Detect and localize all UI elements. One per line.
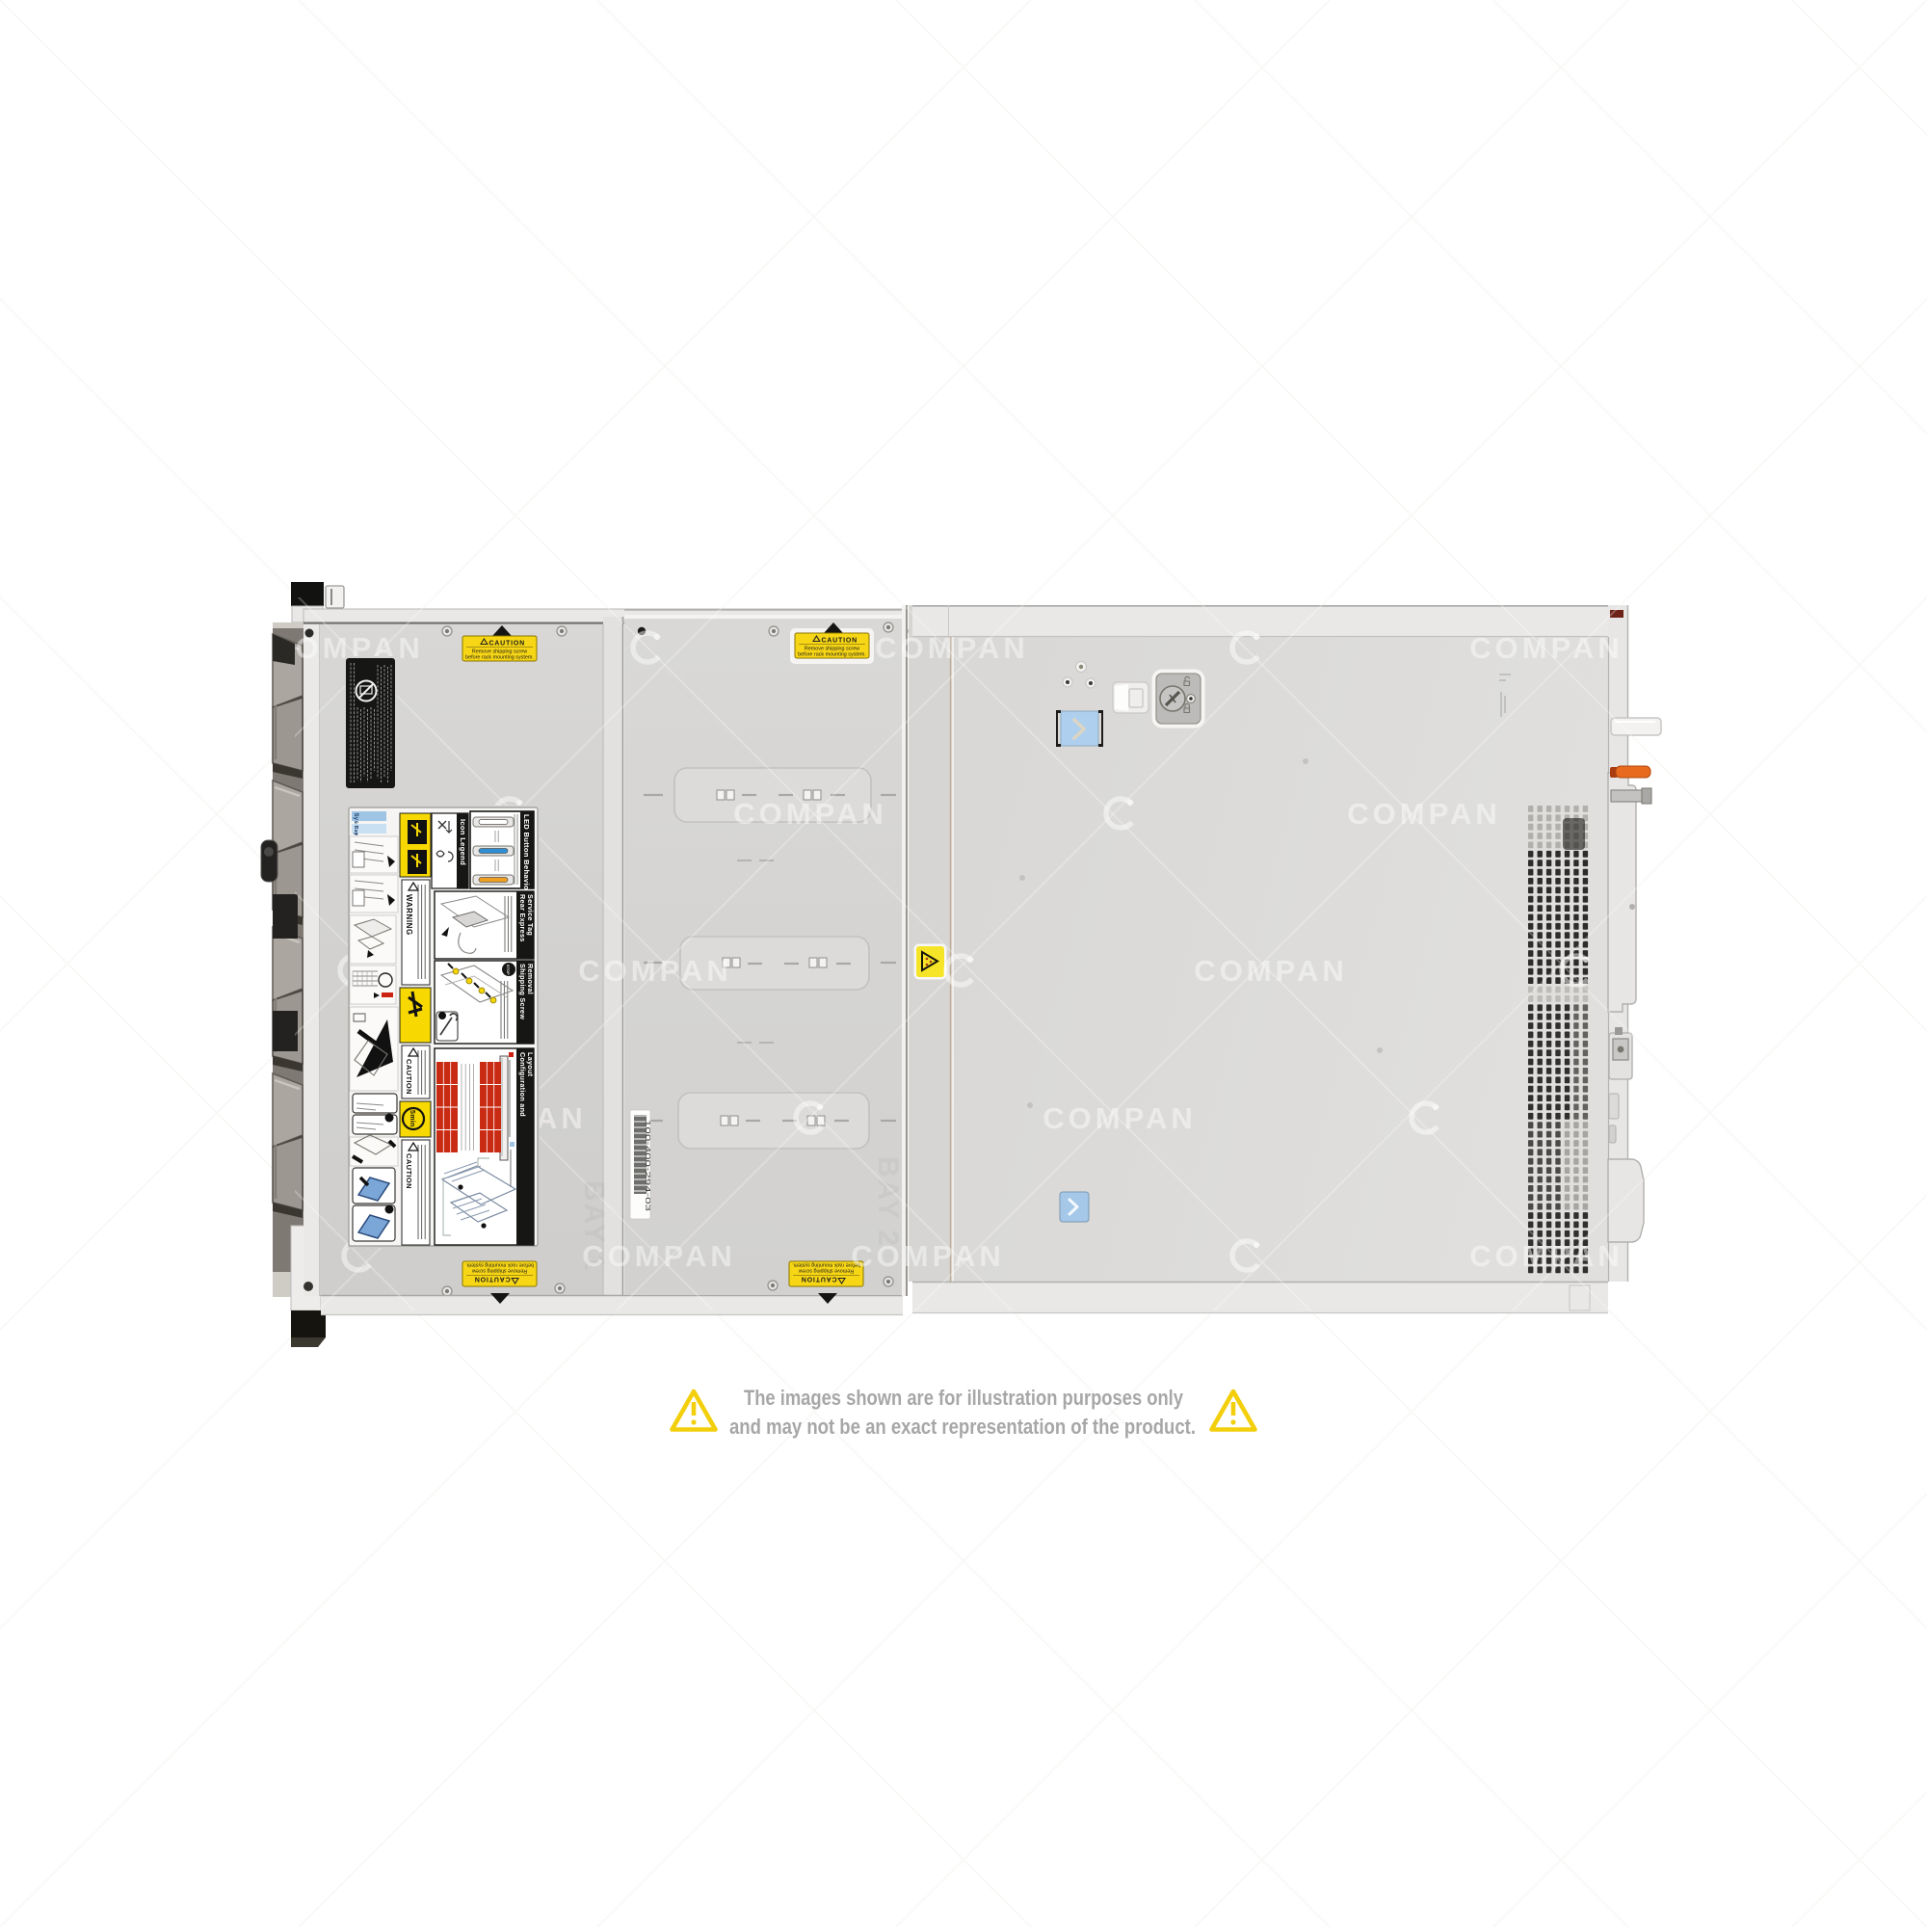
svg-text:and may not be an exact repres: and may not be an exact representation o… [729, 1415, 1196, 1439]
svg-text:Rear Express: Rear Express [518, 894, 527, 942]
svg-text:CAUTION: CAUTION [488, 641, 525, 648]
svg-text:100-400-294-03: 100-400-294-03 [644, 1120, 650, 1211]
svg-text:before rack mounting system.: before rack mounting system. [792, 1262, 860, 1268]
svg-text:WARNING: WARNING [405, 894, 413, 936]
svg-text:Icon Legend: Icon Legend [459, 819, 467, 865]
svg-text:Shipping Screw: Shipping Screw [518, 964, 527, 1019]
svg-text:before rack mounting system.: before rack mounting system. [465, 1262, 534, 1268]
svg-text:COMPAN: COMPAN [851, 1239, 1004, 1273]
svg-text:Service Tag: Service Tag [526, 894, 535, 936]
svg-text:CAUTION: CAUTION [474, 1276, 511, 1283]
svg-text:COMPAN: COMPAN [578, 954, 731, 988]
svg-text:CAUTION: CAUTION [801, 1276, 837, 1283]
svg-text:STOP: STOP [506, 965, 510, 975]
svg-text:CAUTION: CAUTION [405, 1059, 413, 1095]
svg-text:before rack mounting system.: before rack mounting system. [465, 655, 534, 661]
svg-text:CAUTION: CAUTION [405, 1153, 413, 1189]
svg-text:COMPAN: COMPAN [433, 1101, 586, 1135]
svg-text:COMPAN: COMPAN [1469, 1239, 1623, 1273]
svg-text:COMPAN: COMPAN [1347, 797, 1500, 831]
svg-text:Removal: Removal [526, 964, 535, 994]
svg-text:The images shown are for illus: The images shown are for illustration pu… [744, 1386, 1183, 1410]
svg-text:5min: 5min [409, 1110, 415, 1127]
svg-text:COMPAN: COMPAN [582, 1239, 735, 1273]
svg-text:BAY 2: BAY 2 [872, 1156, 904, 1248]
svg-text:COMPAN: COMPAN [875, 631, 1028, 665]
svg-text:COMPAN: COMPAN [1043, 1101, 1196, 1135]
svg-text:CAUTION: CAUTION [821, 638, 858, 645]
svg-text:COMPAN: COMPAN [733, 797, 886, 831]
svg-text:Layout: Layout [526, 1052, 535, 1077]
svg-text:COMPAN: COMPAN [1469, 631, 1623, 665]
svg-text:before rack mounting system.: before rack mounting system. [798, 652, 866, 658]
svg-text:COMPAN: COMPAN [1194, 954, 1347, 988]
